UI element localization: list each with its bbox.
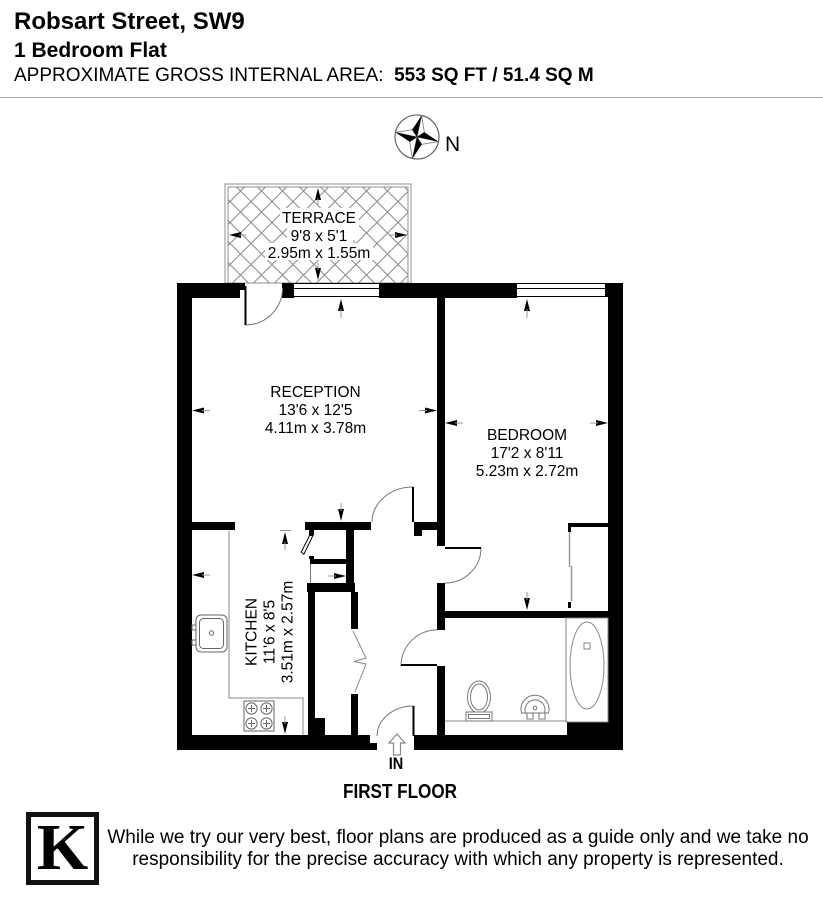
svg-text:KITCHEN: KITCHEN xyxy=(244,598,261,666)
svg-text:17'2 x 8'11: 17'2 x 8'11 xyxy=(491,445,564,462)
svg-text:3.51m x 2.57m: 3.51m x 2.57m xyxy=(280,581,297,684)
svg-text:FIRST FLOOR: FIRST FLOOR xyxy=(343,780,457,803)
svg-text:11'6 x 8'5: 11'6 x 8'5 xyxy=(262,600,279,664)
svg-text:2.95m x 1.55m: 2.95m x 1.55m xyxy=(268,245,371,262)
svg-text:4.11m x 3.78m: 4.11m x 3.78m xyxy=(265,420,366,437)
svg-text:9'8 x 5'1: 9'8 x 5'1 xyxy=(291,228,348,245)
svg-text:N: N xyxy=(445,133,460,156)
svg-text:RECEPTION: RECEPTION xyxy=(270,384,360,401)
svg-text:BEDROOM: BEDROOM xyxy=(487,427,567,444)
svg-text:IN: IN xyxy=(389,754,404,773)
svg-text:TERRACE: TERRACE xyxy=(282,210,356,227)
svg-text:13'6 x 12'5: 13'6 x 12'5 xyxy=(278,402,352,419)
svg-text:5.23m x 2.72m: 5.23m x 2.72m xyxy=(476,463,579,480)
